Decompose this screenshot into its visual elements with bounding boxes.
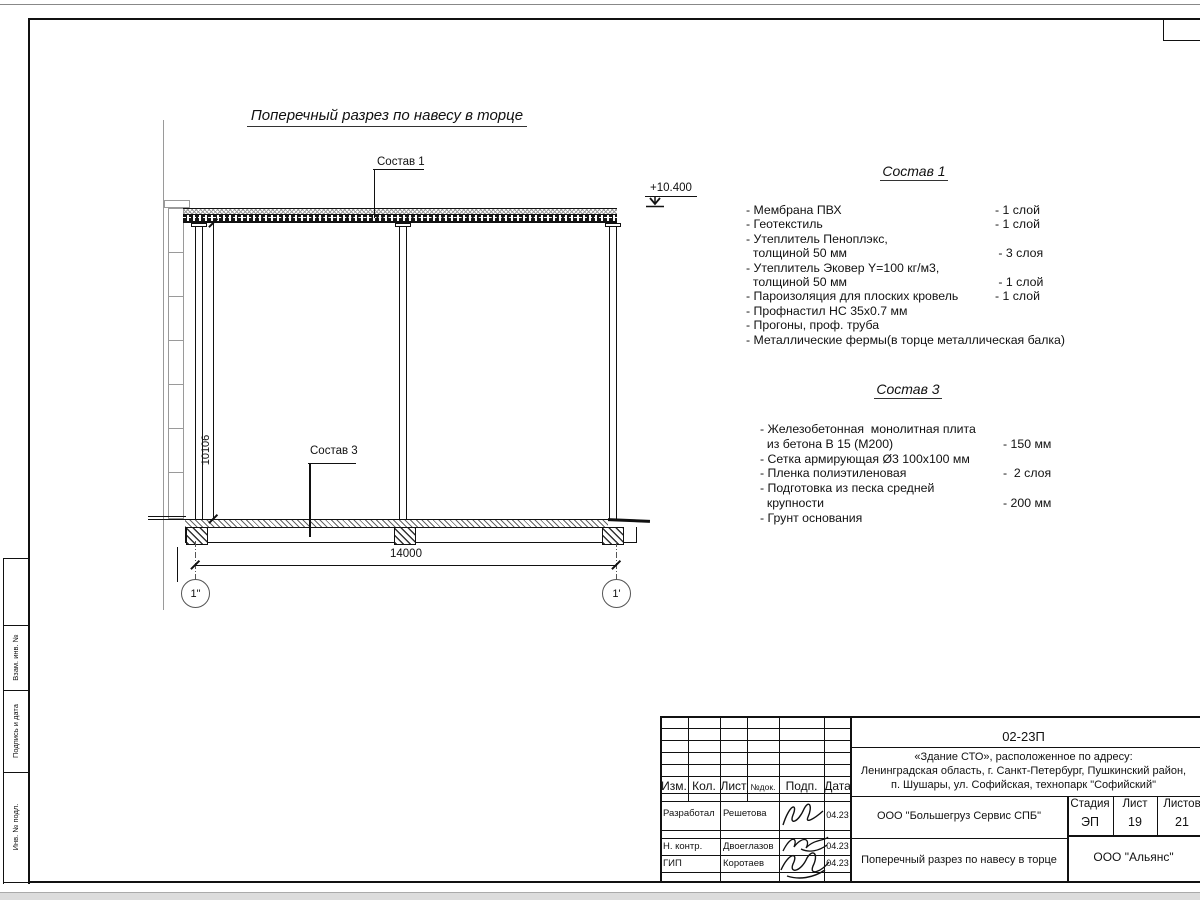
stamp-inv-podl: Инв. № подл. xyxy=(9,774,22,880)
line xyxy=(177,547,178,582)
address-line1: «Здание СТО», расположенное по адресу: xyxy=(851,751,1196,763)
foundation-pad-right xyxy=(602,527,624,545)
line xyxy=(1067,835,1200,837)
dim-line-vertical xyxy=(213,223,214,519)
line xyxy=(3,625,28,626)
line xyxy=(851,747,1200,748)
row-role: Н. контр. xyxy=(663,841,702,852)
line xyxy=(660,740,850,741)
line xyxy=(660,728,850,729)
line xyxy=(851,838,1067,839)
list-item: - Грунт основания xyxy=(760,511,1200,526)
col-izm: Изм. xyxy=(660,779,688,793)
sheet-number: 19 xyxy=(1113,815,1157,829)
leader-line xyxy=(373,169,424,170)
list-item: - Утеплитель Эковер Y=100 кг/м3, xyxy=(746,261,1196,275)
col-data: Дата xyxy=(824,779,851,793)
foundation-pad-left xyxy=(186,527,208,545)
col-list: Лист xyxy=(720,779,747,793)
ground-line xyxy=(148,519,186,520)
ground-line xyxy=(148,516,186,517)
org-name: ООО "Большегруз Сервис СПБ" xyxy=(851,810,1067,822)
line xyxy=(3,882,28,883)
stamp-podpis-data: Подпись и дата xyxy=(9,692,22,770)
sheets-total: 21 xyxy=(1157,815,1200,829)
axis-left-label: 1" xyxy=(190,588,200,600)
row-role: Разработал xyxy=(663,808,715,819)
row-role: ГИП xyxy=(663,858,682,869)
line xyxy=(660,716,1200,718)
axis-line xyxy=(616,541,617,579)
list-item: крупности- 200 мм xyxy=(760,496,1200,511)
elevation-arrow-icon xyxy=(644,196,668,210)
frame-top xyxy=(28,18,1200,20)
wall-cap xyxy=(164,200,190,208)
list-item: из бетона В 15 (М200)- 150 мм xyxy=(760,437,1200,452)
address-line3: п. Шушары, ул. Софийская, технопарк "Соф… xyxy=(851,779,1196,791)
column-right xyxy=(609,227,617,519)
line xyxy=(3,690,28,691)
dim-line-horizontal xyxy=(195,565,617,566)
view-title: Поперечный разрез по навесу в торце xyxy=(247,107,527,127)
col-kol: Кол. xyxy=(688,779,720,793)
list-item: - Сетка армирующая Ø3 100х100 мм xyxy=(760,452,1200,467)
list-item: - Подготовка из песка средней xyxy=(760,481,1200,496)
sostav3-list: - Железобетонная монолитная плита из бет… xyxy=(760,422,1200,526)
signature xyxy=(777,846,833,882)
elevation-mark-label: +10.400 xyxy=(650,182,692,194)
sheet-title-cell: Поперечный разрез по навесу в торце xyxy=(851,854,1067,866)
frame-left xyxy=(28,18,30,884)
address-line2: Ленинградская область, г. Санкт-Петербур… xyxy=(851,765,1196,777)
leader-line xyxy=(309,463,311,537)
axis-right-label: 1' xyxy=(612,588,620,600)
list-item: - Мембрана ПВХ- 1 слой xyxy=(746,203,1196,217)
sostav1-heading: Состав 1 xyxy=(864,163,964,179)
row-name: Двоеглазов xyxy=(723,841,774,852)
slab-edge-wedge xyxy=(608,518,650,522)
stage-label: Стадия xyxy=(1067,798,1113,810)
roof-insulation-layer xyxy=(183,208,617,215)
list-item: - Пленка полиэтиленовая- 2 слоя xyxy=(760,466,1200,481)
dim-width-label: 14000 xyxy=(375,548,437,560)
line xyxy=(660,776,850,777)
list-item: - Железобетонная монолитная плита xyxy=(760,422,1200,437)
axis-bubble-right: 1' xyxy=(602,579,631,608)
line xyxy=(851,796,1200,797)
list-item: - Прогоны, проф. труба xyxy=(746,318,1196,332)
stamp-vzam-inv: Взам. инв. № xyxy=(9,627,22,688)
stage-value: ЭП xyxy=(1067,815,1113,829)
drawing-sheet: Взам. инв. № Подпись и дата Инв. № подл.… xyxy=(0,0,1200,900)
line xyxy=(660,793,850,794)
list-item: - Металлические фермы(в торце металличес… xyxy=(746,333,1196,347)
corner-doc-box xyxy=(1163,18,1200,41)
leader-sostav3-label: Состав 3 xyxy=(310,445,358,457)
line xyxy=(3,558,4,884)
list-item: - Профнастил НС 35х0.7 мм xyxy=(746,304,1196,318)
column-middle xyxy=(399,227,407,519)
sheet-bottom-strip xyxy=(0,893,1200,900)
line xyxy=(3,558,28,559)
foundation-pad-middle xyxy=(394,527,416,545)
col-podp: Подп. xyxy=(779,779,824,793)
doc-number: 02-23П xyxy=(851,729,1196,744)
sheet-label: Лист xyxy=(1113,798,1157,810)
signature xyxy=(780,799,826,833)
list-item: - Пароизоляция для плоских кровель- 1 сл… xyxy=(746,289,1196,303)
line xyxy=(660,752,850,753)
line xyxy=(163,120,164,610)
axis-bubble-left: 1" xyxy=(181,579,210,608)
line xyxy=(660,764,850,765)
list-item: толщиной 50 мм - 1 слой xyxy=(746,275,1196,289)
frame-bottom xyxy=(28,881,1200,883)
roof-profiled-deck xyxy=(183,215,617,223)
sostav1-list: - Мембрана ПВХ- 1 слой - Геотекстиль- 1 … xyxy=(746,203,1196,347)
dim-height-label: 10106 xyxy=(200,423,212,477)
leader-line xyxy=(374,169,375,218)
list-item: - Геотекстиль- 1 слой xyxy=(746,217,1196,231)
row-name: Коротаев xyxy=(723,858,764,869)
col-ndok: №док. xyxy=(747,782,779,792)
contractor-name: ООО "Альянс" xyxy=(1067,850,1200,864)
sheets-label: Листов xyxy=(1157,798,1200,810)
sheet-top-edge xyxy=(0,4,1200,5)
sostav3-heading: Состав 3 xyxy=(858,381,958,397)
line xyxy=(3,772,28,773)
axis-line xyxy=(195,541,196,579)
list-item: - Утеплитель Пеноплэкс, xyxy=(746,232,1196,246)
leader-sostav1-label: Состав 1 xyxy=(377,156,425,168)
list-item: толщиной 50 мм - 3 слоя xyxy=(746,246,1196,260)
row-name: Решетова xyxy=(723,808,767,819)
leader-line xyxy=(308,463,356,464)
row-date: 04.23 xyxy=(824,810,851,820)
wall-panels xyxy=(168,208,184,519)
